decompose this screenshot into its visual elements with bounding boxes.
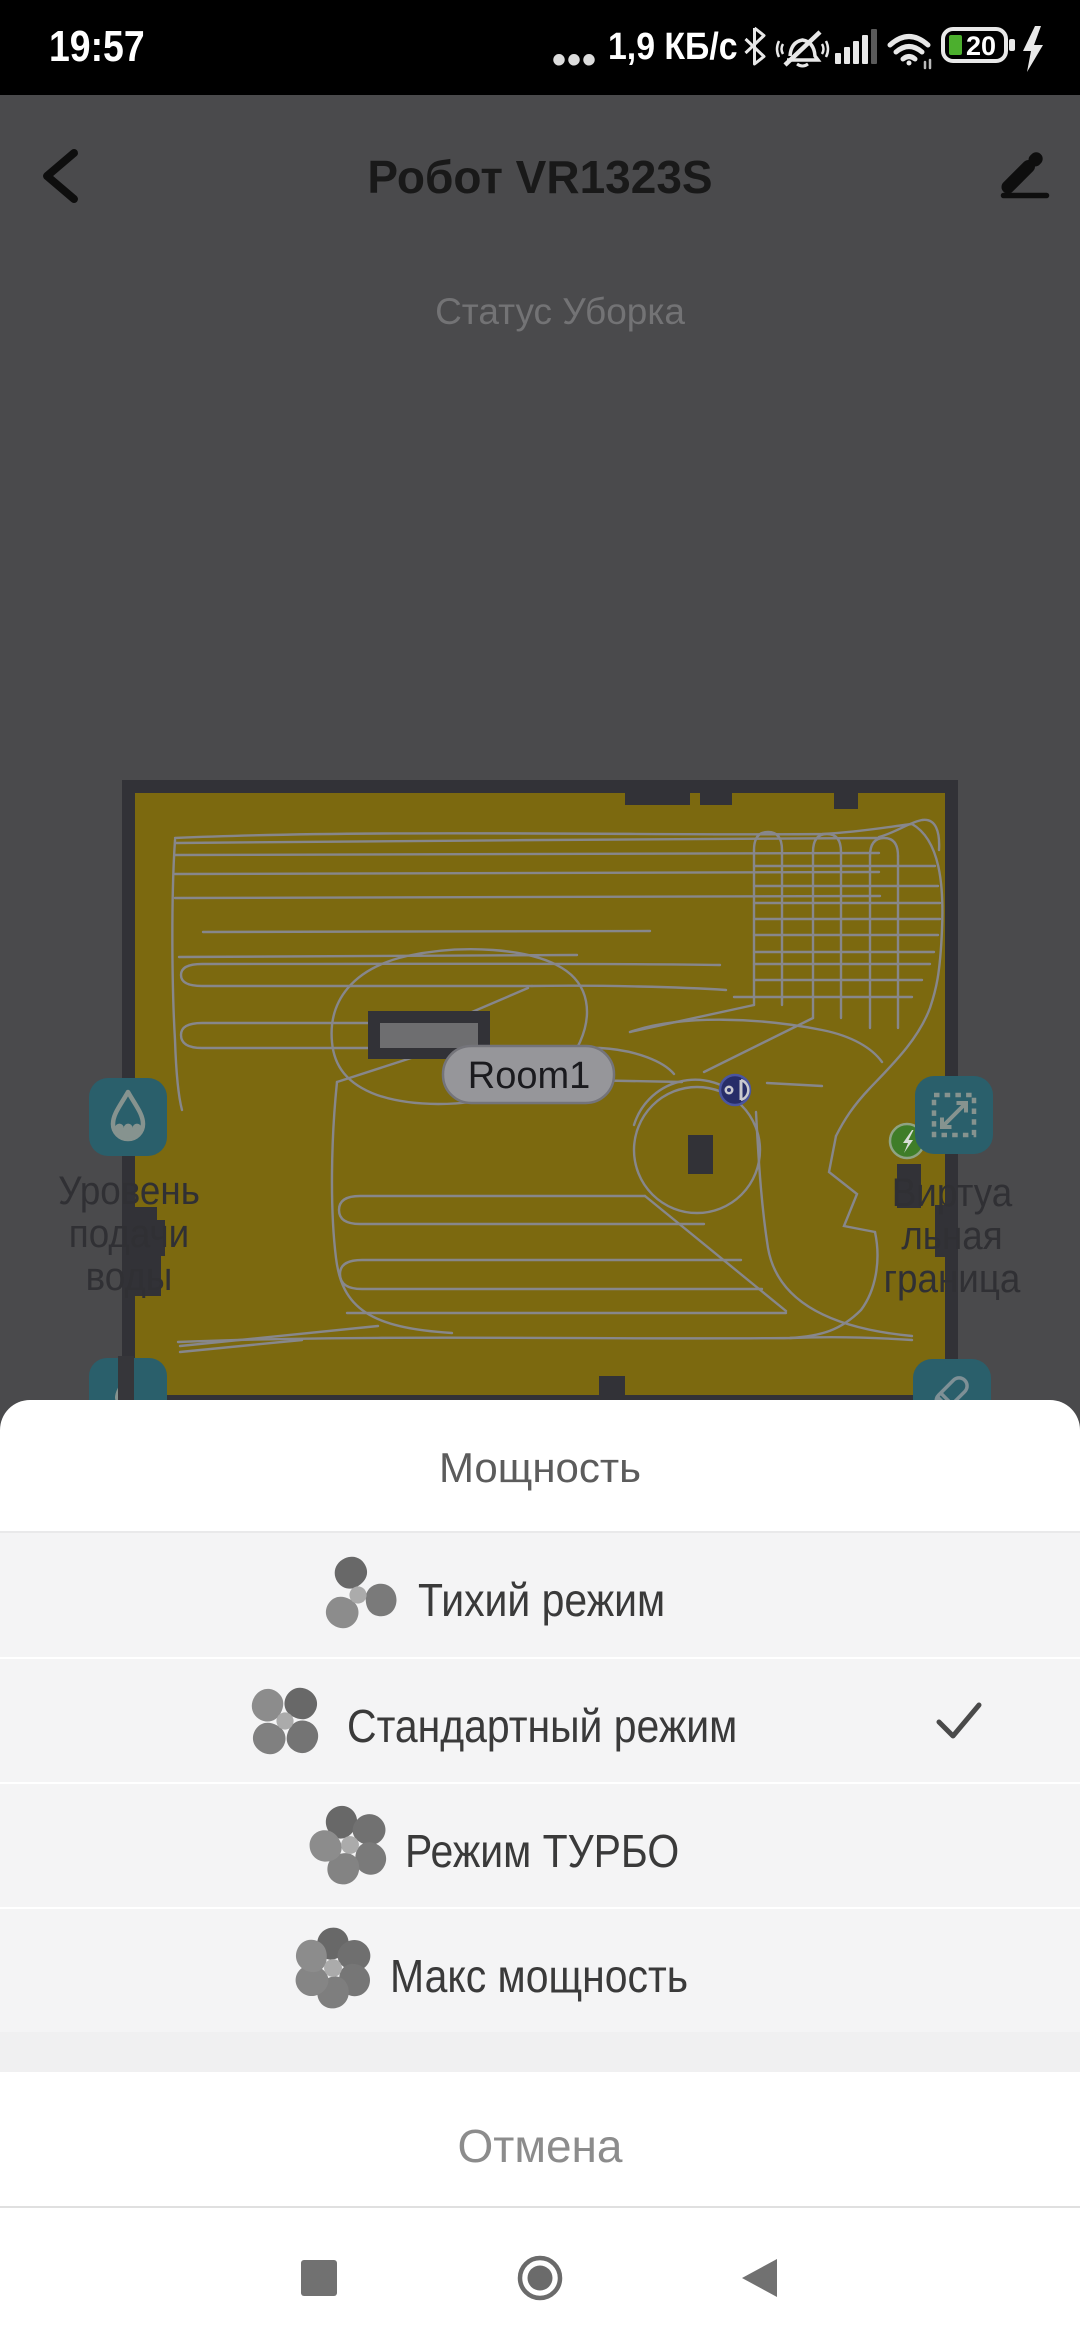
svg-text:20: 20 bbox=[966, 31, 996, 61]
svg-text:Room1: Room1 bbox=[468, 1055, 591, 1097]
